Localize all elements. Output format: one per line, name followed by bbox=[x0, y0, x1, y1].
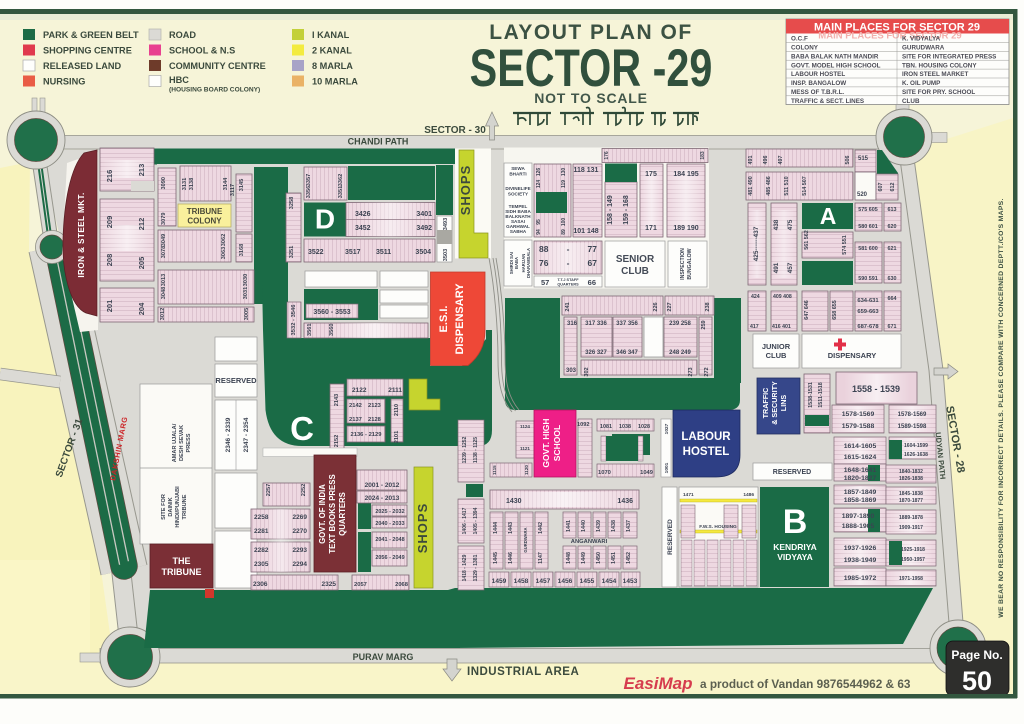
svg-text:B: B bbox=[783, 503, 808, 541]
svg-text:201: 201 bbox=[105, 300, 114, 313]
svg-text:COLONY: COLONY bbox=[791, 45, 819, 52]
svg-text:1578-1569: 1578-1569 bbox=[842, 411, 875, 418]
svg-text:F.W.S. HOUSING: F.W.S. HOUSING bbox=[699, 524, 737, 530]
svg-text:2025 - 2032: 2025 - 2032 bbox=[375, 509, 404, 515]
svg-text:SCHOOL & N.S: SCHOOL & N.S bbox=[169, 46, 235, 56]
svg-text:496: 496 bbox=[763, 156, 769, 165]
svg-text:590 591: 590 591 bbox=[858, 276, 878, 282]
svg-text:302: 302 bbox=[584, 367, 590, 376]
svg-text:SHOPS: SHOPS bbox=[415, 503, 430, 554]
svg-text:1909-1917: 1909-1917 bbox=[899, 525, 923, 531]
svg-text:204: 204 bbox=[137, 302, 146, 315]
svg-text:2152: 2152 bbox=[334, 435, 340, 447]
svg-text:I KANAL: I KANAL bbox=[312, 30, 350, 40]
svg-text:520: 520 bbox=[857, 192, 868, 198]
svg-text:607: 607 bbox=[878, 183, 884, 192]
svg-text:3504: 3504 bbox=[415, 249, 431, 256]
svg-text:1626-1638: 1626-1638 bbox=[904, 452, 928, 458]
svg-text:212: 212 bbox=[137, 218, 146, 231]
svg-text:2137: 2137 bbox=[349, 417, 362, 423]
svg-text:3062: 3062 bbox=[221, 234, 227, 246]
svg-text:515: 515 bbox=[858, 156, 869, 162]
svg-text:WE BEAR NO RESPONSIBILITY FOR: WE BEAR NO RESPONSIBILITY FOR INCORRECT … bbox=[998, 198, 1005, 617]
svg-text:RESERVED: RESERVED bbox=[773, 469, 811, 476]
svg-text:2347 - 2354: 2347 - 2354 bbox=[243, 417, 250, 452]
svg-text:1038: 1038 bbox=[619, 424, 631, 430]
svg-text:3492: 3492 bbox=[416, 225, 432, 232]
svg-text:183: 183 bbox=[700, 151, 706, 160]
svg-text:QUARTERS: QUARTERS bbox=[338, 492, 347, 536]
svg-text:346 347: 346 347 bbox=[616, 350, 638, 356]
svg-text:GURDWARA: GURDWARA bbox=[523, 527, 528, 552]
svg-text:1438: 1438 bbox=[611, 520, 617, 532]
svg-text:3522: 3522 bbox=[308, 249, 324, 256]
svg-text:2040 - 2033: 2040 - 2033 bbox=[375, 521, 404, 527]
svg-text:3258: 3258 bbox=[289, 197, 295, 209]
svg-text:HINDI/PUNJABI: HINDI/PUNJABI bbox=[175, 486, 181, 528]
svg-text:KENDRIYA: KENDRIYA bbox=[773, 542, 817, 552]
svg-text:1455: 1455 bbox=[580, 578, 595, 585]
svg-text:SITE FOR: SITE FOR bbox=[161, 494, 167, 520]
svg-text:1147: 1147 bbox=[538, 552, 544, 564]
svg-text:575 605: 575 605 bbox=[858, 207, 878, 213]
svg-text:1538-1531: 1538-1531 bbox=[808, 382, 814, 408]
svg-text:3078: 3078 bbox=[161, 246, 167, 258]
svg-text:1826-1838: 1826-1838 bbox=[899, 476, 923, 482]
svg-text:8 MARLA: 8 MARLA bbox=[312, 61, 353, 71]
svg-text:2128: 2128 bbox=[368, 417, 382, 423]
svg-text:581 600: 581 600 bbox=[858, 246, 878, 252]
svg-text:2252: 2252 bbox=[301, 484, 307, 496]
svg-text:1579-1588: 1579-1588 bbox=[842, 423, 875, 430]
svg-text:1938-1949: 1938-1949 bbox=[844, 557, 877, 564]
svg-text:QUARTERS: QUARTERS bbox=[557, 283, 579, 287]
svg-text:1028: 1028 bbox=[638, 424, 650, 430]
svg-text:2041 - 2048: 2041 - 2048 bbox=[375, 537, 404, 543]
svg-text:1889-1878: 1889-1878 bbox=[899, 515, 923, 521]
svg-text:101 148: 101 148 bbox=[573, 228, 598, 235]
svg-text:3560 - 3553: 3560 - 3553 bbox=[313, 309, 350, 316]
svg-text:88: 88 bbox=[539, 244, 549, 254]
svg-text:273: 273 bbox=[688, 367, 694, 376]
svg-text:JUNIOR: JUNIOR bbox=[762, 342, 791, 351]
svg-text:424: 424 bbox=[751, 294, 760, 300]
svg-text:2122: 2122 bbox=[352, 387, 367, 394]
svg-text:303: 303 bbox=[566, 368, 577, 374]
svg-text:1971-1958: 1971-1958 bbox=[899, 576, 923, 582]
svg-text:2123: 2123 bbox=[368, 403, 382, 409]
svg-text:K. VIDYALYA: K. VIDYALYA bbox=[902, 36, 941, 43]
svg-text:159 - 168: 159 - 168 bbox=[623, 195, 630, 225]
svg-text:481 490: 481 490 bbox=[748, 176, 754, 196]
svg-text:158 - 149: 158 - 149 bbox=[607, 195, 614, 225]
svg-text:TRIBUNE: TRIBUNE bbox=[182, 494, 188, 519]
svg-text:3251: 3251 bbox=[289, 246, 295, 258]
svg-text:SENIOR: SENIOR bbox=[616, 254, 655, 265]
svg-text:2305: 2305 bbox=[254, 561, 269, 568]
svg-text:1124: 1124 bbox=[520, 424, 530, 429]
svg-text:2269: 2269 bbox=[293, 514, 308, 521]
svg-text:THE: THE bbox=[173, 556, 191, 566]
svg-text:561 562: 561 562 bbox=[804, 230, 810, 250]
svg-text:VIDYAYA: VIDYAYA bbox=[777, 552, 812, 562]
svg-text:1440: 1440 bbox=[581, 520, 587, 532]
svg-text:2024 - 2013: 2024 - 2013 bbox=[365, 495, 400, 502]
svg-text:1985-1972: 1985-1972 bbox=[844, 575, 877, 582]
svg-text:1888-1905: 1888-1905 bbox=[842, 523, 875, 530]
svg-text:1092: 1092 bbox=[577, 422, 589, 428]
svg-text:2143: 2143 bbox=[334, 394, 340, 406]
svg-text:2258: 2258 bbox=[254, 514, 269, 521]
svg-text:IRON & STEEL MKT.: IRON & STEEL MKT. bbox=[77, 192, 86, 277]
svg-text:1070: 1070 bbox=[598, 470, 611, 476]
svg-text:TBN. HOUSING COLONY: TBN. HOUSING COLONY bbox=[902, 62, 977, 69]
svg-text:1441: 1441 bbox=[566, 520, 572, 532]
svg-text:BUNGALOW: BUNGALOW bbox=[687, 248, 693, 279]
svg-text:176: 176 bbox=[604, 151, 610, 160]
svg-text:A: A bbox=[820, 203, 837, 229]
svg-text:506: 506 bbox=[845, 156, 851, 165]
svg-text:130: 130 bbox=[561, 168, 567, 177]
svg-text:COMMUNITY CENTRE: COMMUNITY CENTRE bbox=[169, 61, 266, 71]
svg-text:2293: 2293 bbox=[293, 547, 308, 554]
svg-text:2101: 2101 bbox=[394, 431, 400, 443]
svg-text:3351: 3351 bbox=[338, 186, 344, 198]
svg-text:425------437: 425------437 bbox=[753, 226, 760, 261]
svg-text:171: 171 bbox=[645, 225, 657, 232]
svg-text:118 131: 118 131 bbox=[574, 167, 599, 174]
svg-text:RESERVED: RESERVED bbox=[667, 519, 674, 555]
svg-text:485 486: 485 486 bbox=[766, 176, 772, 196]
svg-text:RESERVED: RESERVED bbox=[215, 376, 257, 385]
svg-text:1937-1926: 1937-1926 bbox=[844, 545, 877, 552]
svg-text:1858-1869: 1858-1869 bbox=[844, 497, 877, 504]
svg-text:NOT TO SCALE: NOT TO SCALE bbox=[534, 90, 648, 106]
svg-text:457: 457 bbox=[787, 262, 794, 273]
svg-text:2270: 2270 bbox=[293, 528, 308, 535]
svg-text:1614-1605: 1614-1605 bbox=[844, 443, 877, 450]
svg-text:208: 208 bbox=[105, 254, 114, 267]
svg-text:3561: 3561 bbox=[307, 324, 313, 336]
svg-text:2056 - 2049: 2056 - 2049 bbox=[375, 555, 404, 561]
svg-text:1406 - 1417: 1406 - 1417 bbox=[462, 507, 468, 534]
svg-text:189 190: 189 190 bbox=[673, 225, 698, 232]
svg-text:659-663: 659-663 bbox=[857, 309, 879, 315]
svg-text:LINS: LINS bbox=[779, 395, 788, 412]
svg-text:2294: 2294 bbox=[293, 561, 308, 568]
svg-text:2057: 2057 bbox=[354, 582, 367, 588]
svg-text:1121: 1121 bbox=[520, 446, 530, 451]
svg-text:66: 66 bbox=[588, 278, 596, 287]
svg-text:SHOPPING CENTRE: SHOPPING CENTRE bbox=[43, 46, 132, 56]
svg-text:3168: 3168 bbox=[239, 244, 245, 256]
svg-text:-: - bbox=[567, 244, 570, 254]
svg-text:DIVINELIFE: DIVINELIFE bbox=[505, 186, 530, 191]
svg-text:175: 175 bbox=[645, 171, 657, 178]
svg-text:497: 497 bbox=[778, 156, 784, 165]
svg-text:1451: 1451 bbox=[611, 552, 617, 564]
svg-text:TRIBUNE: TRIBUNE bbox=[187, 207, 223, 216]
svg-text:227: 227 bbox=[667, 302, 673, 311]
svg-text:2001 - 2012: 2001 - 2012 bbox=[365, 482, 400, 489]
svg-text:241: 241 bbox=[565, 302, 571, 311]
svg-text:1442: 1442 bbox=[538, 522, 544, 534]
svg-text:DESH SEVAK: DESH SEVAK bbox=[179, 425, 185, 461]
svg-text:MAIN PLACES FOR SECTOR 29: MAIN PLACES FOR SECTOR 29 bbox=[818, 31, 961, 42]
svg-text:TRAFFIC: TRAFFIC bbox=[761, 388, 770, 419]
svg-text:-: - bbox=[567, 258, 570, 268]
svg-text:1049: 1049 bbox=[640, 470, 654, 476]
svg-text:1511-1518: 1511-1518 bbox=[818, 382, 824, 407]
svg-text:1138 - 1125: 1138 - 1125 bbox=[473, 437, 479, 463]
svg-text:1445: 1445 bbox=[493, 552, 499, 564]
svg-text:3452: 3452 bbox=[355, 225, 371, 232]
svg-text:248 249: 248 249 bbox=[669, 350, 691, 356]
svg-text:2306: 2306 bbox=[253, 581, 268, 588]
svg-text:1459: 1459 bbox=[492, 578, 507, 585]
svg-text:612: 612 bbox=[890, 183, 896, 192]
svg-text:3049: 3049 bbox=[161, 234, 167, 246]
svg-text:GOVT. MODEL HIGH SCHOOL: GOVT. MODEL HIGH SCHOOL bbox=[791, 62, 881, 69]
svg-text:ROAD: ROAD bbox=[169, 30, 196, 40]
svg-text:1453: 1453 bbox=[623, 578, 638, 585]
svg-text:2136 - 2129: 2136 - 2129 bbox=[351, 432, 383, 438]
svg-text:2282: 2282 bbox=[254, 547, 269, 554]
svg-text:1857-1849: 1857-1849 bbox=[844, 489, 877, 496]
svg-text:AMAR UJALA/: AMAR UJALA/ bbox=[172, 423, 178, 462]
svg-text:1950-1957: 1950-1957 bbox=[901, 557, 925, 563]
svg-text:316: 316 bbox=[567, 321, 578, 327]
svg-text:1925-1918: 1925-1918 bbox=[901, 547, 925, 553]
svg-text:658 655: 658 655 bbox=[832, 300, 838, 320]
svg-text:580 601: 580 601 bbox=[858, 224, 878, 230]
svg-text:1027: 1027 bbox=[664, 423, 670, 434]
svg-text:687-678: 687-678 bbox=[857, 324, 879, 330]
svg-text:SOCIETY: SOCIETY bbox=[508, 192, 528, 197]
svg-text:RELEASED LAND: RELEASED LAND bbox=[43, 61, 121, 71]
svg-text:O.C.F: O.C.F bbox=[791, 36, 808, 43]
svg-text:Page No.: Page No. bbox=[951, 648, 1002, 662]
svg-text:1558 - 1539: 1558 - 1539 bbox=[852, 384, 900, 394]
svg-text:2346 - 2339: 2346 - 2339 bbox=[225, 417, 232, 452]
svg-text:T.T.J STAFF: T.T.J STAFF bbox=[557, 278, 579, 282]
svg-text:100: 100 bbox=[561, 218, 567, 227]
svg-text:3090: 3090 bbox=[161, 177, 167, 189]
svg-text:1589-1598: 1589-1598 bbox=[898, 424, 927, 430]
svg-text:1120: 1120 bbox=[524, 465, 529, 475]
svg-text:2281: 2281 bbox=[254, 528, 269, 535]
svg-text:K. OIL PUMP: K. OIL PUMP bbox=[902, 80, 940, 87]
svg-text:1604-1599: 1604-1599 bbox=[904, 443, 928, 449]
svg-text:CLUB: CLUB bbox=[621, 266, 649, 277]
svg-text:213: 213 bbox=[137, 164, 146, 177]
svg-text:2325: 2325 bbox=[322, 581, 337, 588]
svg-text:1471: 1471 bbox=[683, 492, 694, 498]
svg-text:3560: 3560 bbox=[329, 324, 335, 336]
svg-text:514 507: 514 507 bbox=[802, 176, 808, 196]
svg-text:SITE FOR INTEGRATED PRESS: SITE FOR INTEGRATED PRESS bbox=[902, 53, 996, 60]
svg-text:621: 621 bbox=[888, 246, 897, 252]
svg-text:1444: 1444 bbox=[493, 522, 499, 534]
svg-text:3145: 3145 bbox=[239, 179, 245, 191]
svg-text:634-631: 634-631 bbox=[857, 298, 879, 304]
svg-text:LABOUR HOSTEL: LABOUR HOSTEL bbox=[791, 71, 845, 78]
svg-text:3356: 3356 bbox=[306, 186, 312, 198]
svg-text:1448: 1448 bbox=[566, 552, 572, 564]
svg-text:491: 491 bbox=[748, 156, 754, 165]
svg-text:1578-1569: 1578-1569 bbox=[898, 412, 927, 418]
svg-text:511 510: 511 510 bbox=[784, 176, 790, 195]
svg-text:GOVT. HIGH: GOVT. HIGH bbox=[541, 418, 551, 467]
svg-text:3117: 3117 bbox=[230, 184, 236, 196]
svg-text:3357: 3357 bbox=[306, 174, 312, 186]
svg-text:2068: 2068 bbox=[395, 582, 409, 588]
svg-text:119: 119 bbox=[561, 180, 567, 188]
svg-text:89: 89 bbox=[561, 229, 567, 235]
svg-text:3063: 3063 bbox=[221, 247, 227, 259]
svg-text:1458: 1458 bbox=[514, 578, 529, 585]
svg-text:2110: 2110 bbox=[394, 404, 400, 416]
svg-text:1418 - 1429: 1418 - 1429 bbox=[462, 554, 468, 581]
svg-text:PRESS: PRESS bbox=[186, 433, 192, 452]
svg-text:HBC: HBC bbox=[169, 75, 189, 85]
svg-text:620: 620 bbox=[888, 224, 897, 230]
svg-text:1648-1641: 1648-1641 bbox=[844, 467, 877, 474]
svg-text:1486: 1486 bbox=[743, 492, 754, 498]
svg-text:3012: 3012 bbox=[160, 308, 166, 320]
svg-text:1405 - 1394: 1405 - 1394 bbox=[473, 507, 479, 534]
svg-text:95: 95 bbox=[536, 219, 542, 225]
svg-text:124: 124 bbox=[536, 180, 542, 189]
svg-text:3401: 3401 bbox=[416, 211, 432, 218]
svg-text:TRIBUNE: TRIBUNE bbox=[162, 567, 202, 577]
svg-text:409 408: 409 408 bbox=[773, 294, 792, 300]
svg-text:1450: 1450 bbox=[596, 552, 602, 564]
svg-text:3511: 3511 bbox=[376, 249, 391, 256]
svg-text:CHANDI PATH: CHANDI PATH bbox=[348, 137, 409, 147]
svg-text:1820-1827: 1820-1827 bbox=[844, 475, 877, 482]
svg-text:a product of Vandan 9876544962: a product of Vandan 9876544962 & 63 bbox=[700, 677, 911, 691]
svg-text:3532 - 3546: 3532 - 3546 bbox=[291, 304, 297, 336]
svg-text:& SECURITY: & SECURITY bbox=[770, 381, 779, 425]
svg-text:317 336: 317 336 bbox=[585, 321, 607, 327]
svg-text:DISPENSARY: DISPENSARY bbox=[828, 351, 876, 360]
svg-text:1615-1624: 1615-1624 bbox=[844, 454, 877, 461]
svg-text:C: C bbox=[290, 410, 314, 447]
svg-text:INSP. BANGALOW: INSP. BANGALOW bbox=[791, 80, 846, 87]
svg-text:226: 226 bbox=[653, 302, 659, 311]
svg-text:BABA: BABA bbox=[514, 257, 519, 269]
svg-text:438: 438 bbox=[773, 219, 780, 230]
svg-text:1436: 1436 bbox=[617, 498, 633, 505]
svg-text:3031: 3031 bbox=[243, 287, 249, 299]
svg-text:1437: 1437 bbox=[626, 520, 632, 532]
svg-text:BHARTI: BHARTI bbox=[509, 172, 526, 177]
svg-text:630: 630 bbox=[888, 276, 897, 282]
svg-text:3079: 3079 bbox=[161, 213, 167, 225]
svg-text:NURSING: NURSING bbox=[43, 77, 85, 87]
svg-text:1897-1890: 1897-1890 bbox=[842, 513, 875, 520]
svg-text:1452: 1452 bbox=[626, 552, 632, 564]
svg-text:ANGANWARI: ANGANWARI bbox=[571, 539, 608, 545]
svg-text:1840-1832: 1840-1832 bbox=[899, 469, 923, 475]
svg-text:3362: 3362 bbox=[338, 174, 344, 186]
svg-text:1001: 1001 bbox=[664, 462, 670, 473]
svg-text:DAINIK: DAINIK bbox=[168, 497, 174, 516]
svg-text:1456: 1456 bbox=[558, 578, 573, 585]
svg-text:3131: 3131 bbox=[182, 178, 188, 190]
svg-text:COLONY: COLONY bbox=[187, 217, 222, 226]
svg-text:DISPENSARY: DISPENSARY bbox=[454, 283, 466, 355]
svg-text:SHOPS: SHOPS bbox=[458, 165, 473, 216]
svg-text:416 401: 416 401 bbox=[772, 324, 791, 330]
svg-text:PURAV MARG: PURAV MARG bbox=[353, 652, 414, 662]
svg-text:3426: 3426 bbox=[355, 211, 371, 218]
svg-text:1449: 1449 bbox=[581, 552, 587, 564]
svg-text:50: 50 bbox=[962, 666, 992, 696]
svg-text:184 195: 184 195 bbox=[673, 171, 698, 178]
svg-text:E.S.I.: E.S.I. bbox=[438, 306, 450, 333]
svg-text:259: 259 bbox=[701, 320, 707, 329]
svg-text:475: 475 bbox=[787, 219, 794, 230]
svg-text:DHARAMSALA: DHARAMSALA bbox=[526, 248, 531, 278]
svg-text:(HOUSING BOARD COLONY): (HOUSING BOARD COLONY) bbox=[169, 87, 260, 94]
svg-text:417: 417 bbox=[750, 324, 759, 330]
svg-text:MESS OF T.B.R.L.: MESS OF T.B.R.L. bbox=[791, 89, 844, 96]
svg-text:SABHA: SABHA bbox=[510, 229, 527, 234]
svg-text:76: 76 bbox=[539, 258, 549, 268]
svg-text:SITE FOR PRY. SCHOOL: SITE FOR PRY. SCHOOL bbox=[902, 89, 975, 96]
svg-text:238: 238 bbox=[705, 302, 711, 311]
svg-text:2142: 2142 bbox=[349, 403, 362, 409]
svg-text:CLUB: CLUB bbox=[766, 351, 787, 360]
svg-text:HOSTEL: HOSTEL bbox=[683, 446, 730, 458]
svg-text:10 MARLA: 10 MARLA bbox=[312, 77, 358, 87]
svg-text:3005: 3005 bbox=[244, 308, 250, 320]
svg-text:1329 - 1381: 1329 - 1381 bbox=[473, 554, 479, 581]
svg-text:GURUDWARA: GURUDWARA bbox=[902, 45, 945, 52]
svg-text:94: 94 bbox=[536, 229, 542, 235]
svg-text:3030: 3030 bbox=[243, 274, 249, 286]
svg-text:491: 491 bbox=[773, 262, 780, 273]
svg-text:326 327: 326 327 bbox=[585, 350, 607, 356]
svg-text:1439: 1439 bbox=[596, 520, 602, 532]
svg-text:INDUSTRIAL AREA: INDUSTRIAL AREA bbox=[467, 666, 579, 678]
svg-text:1115: 1115 bbox=[492, 465, 497, 475]
svg-text:1870-1877: 1870-1877 bbox=[899, 498, 923, 504]
svg-text:SEWA: SEWA bbox=[511, 166, 525, 171]
svg-text:LABOUR: LABOUR bbox=[681, 431, 731, 443]
svg-text:SCHOOL: SCHOOL bbox=[552, 425, 562, 461]
svg-text:3503: 3503 bbox=[443, 249, 449, 261]
svg-text:1454: 1454 bbox=[602, 578, 617, 585]
svg-text:3493: 3493 bbox=[443, 218, 449, 230]
svg-text:TEXT BOOKS PRESS: TEXT BOOKS PRESS bbox=[328, 474, 337, 553]
svg-text:CLUB: CLUB bbox=[902, 98, 920, 105]
svg-text:GOVT. OF INDIA: GOVT. OF INDIA bbox=[318, 484, 327, 544]
svg-text:2257: 2257 bbox=[266, 484, 272, 496]
svg-text:67: 67 bbox=[588, 258, 598, 268]
svg-text:205: 205 bbox=[137, 257, 146, 270]
svg-text:1430: 1430 bbox=[506, 498, 522, 505]
svg-text:1845-1838: 1845-1838 bbox=[899, 491, 923, 497]
svg-text:IRON STEEL MARKET: IRON STEEL MARKET bbox=[902, 71, 969, 78]
svg-text:613: 613 bbox=[888, 207, 897, 213]
svg-text:SECTOR - 30: SECTOR - 30 bbox=[424, 125, 486, 136]
svg-text:EasiMap: EasiMap bbox=[624, 674, 693, 693]
svg-text:3048: 3048 bbox=[161, 287, 167, 299]
svg-text:INSPECTION: INSPECTION bbox=[680, 248, 686, 280]
